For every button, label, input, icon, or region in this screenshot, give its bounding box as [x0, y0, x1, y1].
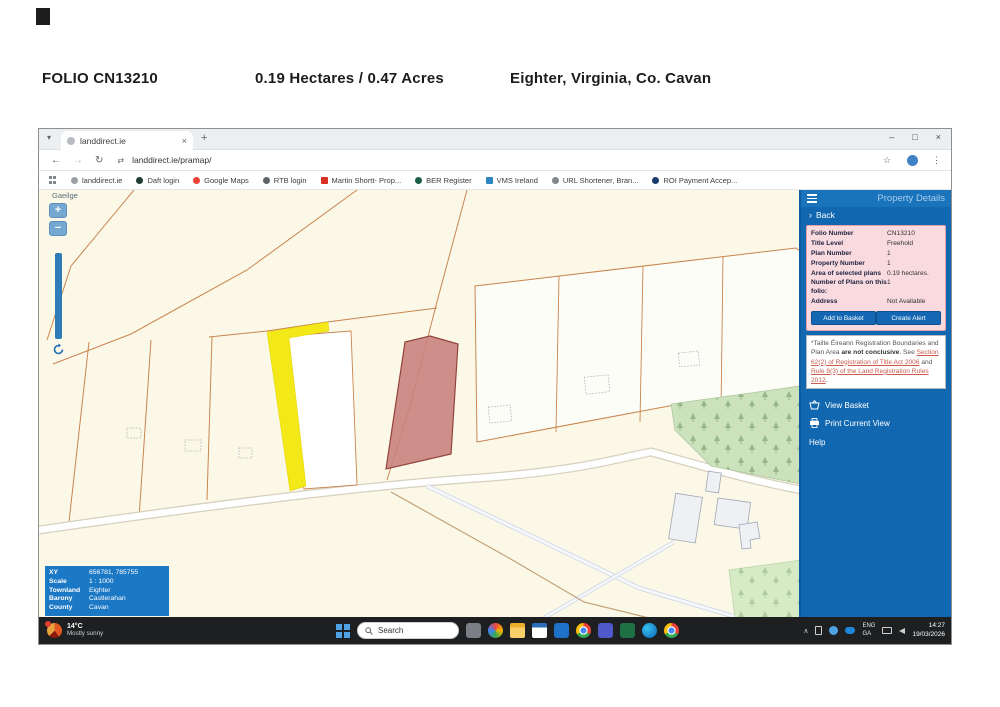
zoom-slider[interactable]	[55, 253, 62, 339]
bookmark-favicon-icon	[321, 177, 328, 184]
detail-row: Title LevelFreehold	[811, 240, 941, 249]
area-title: 0.19 Hectares / 0.47 Acres	[255, 70, 444, 87]
tab-close-icon[interactable]: ×	[182, 136, 187, 146]
bookmark-favicon-icon	[486, 177, 493, 184]
detail-row: Folio NumberCN13210	[811, 230, 941, 239]
bookmark-favicon-icon	[263, 177, 270, 184]
map-basemap	[39, 190, 799, 618]
zoom-out-button[interactable]: −	[49, 221, 67, 236]
window-minimize-button[interactable]: –	[889, 132, 894, 142]
browser-toolbar: ← → ↻ ⇄ landdirect.ie/pramap/ ☆ ⋮	[39, 150, 951, 171]
phone-link-icon[interactable]	[815, 626, 822, 635]
disclaimer-card: *Tailte Éireann Registration Boundaries …	[806, 335, 946, 389]
bookmark-favicon-icon	[552, 177, 559, 184]
file-explorer-icon[interactable]	[510, 623, 525, 638]
back-icon[interactable]: ←	[51, 155, 61, 166]
clock[interactable]: 14:27 19/03/2026	[912, 622, 945, 639]
bookmark-favicon-icon	[193, 177, 200, 184]
help-link[interactable]: Help	[801, 434, 951, 451]
add-to-basket-button[interactable]: Add to Basket	[811, 311, 876, 325]
chrome-2-icon[interactable]	[664, 623, 679, 638]
bookmark-favicon-icon	[71, 177, 78, 184]
bookmark-favicon-icon	[415, 177, 422, 184]
search-icon	[365, 627, 373, 635]
volume-icon[interactable]	[899, 628, 905, 634]
info-row: TownlandEighter	[49, 587, 165, 596]
detail-row: Property Number1	[811, 260, 941, 269]
disclaimer-link-registration-rules[interactable]: Rule 8(3) of the Land Registration Rules…	[811, 368, 929, 384]
bookmark-favicon-icon	[136, 177, 143, 184]
bookmark-ber-register[interactable]: BER Register	[415, 176, 471, 185]
zoom-in-button[interactable]: +	[49, 203, 67, 218]
panel-title: Property Details	[817, 193, 945, 204]
detail-row: Number of Plans on this folio:1	[811, 279, 941, 297]
photos-icon[interactable]	[488, 623, 503, 638]
view-basket-link[interactable]: View Basket	[801, 396, 951, 414]
tab-strip: ▾ landdirect.ie × + – □ ×	[39, 129, 951, 150]
onedrive-icon[interactable]	[845, 627, 855, 634]
tab-list-chevron-icon[interactable]: ▾	[47, 133, 51, 142]
tab-title: landdirect.ie	[80, 136, 177, 146]
forward-icon[interactable]: →	[73, 155, 83, 166]
bookmark-star-icon[interactable]: ☆	[883, 155, 891, 166]
bluetooth-icon[interactable]	[829, 626, 838, 635]
back-button[interactable]: › Back	[801, 207, 951, 223]
outlook-icon[interactable]	[554, 623, 569, 638]
windows-taskbar: 14°C Mostly sunny Search	[39, 617, 951, 644]
bookmark-vms-ireland[interactable]: VMS Ireland	[486, 176, 538, 185]
detail-row: Plan Number1	[811, 250, 941, 259]
teams-icon[interactable]	[598, 623, 613, 638]
bookmark-martin-shortt[interactable]: Martin Shortt- Prop...	[321, 176, 402, 185]
info-row: BaronyCastlerahan	[49, 595, 165, 604]
edge-icon[interactable]	[642, 623, 657, 638]
browser-tab[interactable]: landdirect.ie ×	[61, 131, 193, 150]
bookmark-landdirect[interactable]: landdirect.ie	[71, 176, 122, 185]
reload-icon[interactable]: ↻	[95, 155, 103, 166]
weather-condition: Mostly sunny	[67, 631, 103, 638]
info-row: Scale1 : 1000	[49, 578, 165, 587]
bookmark-url-shortener[interactable]: URL Shortener, Bran...	[552, 176, 639, 185]
language-toggle[interactable]: Gaeilge	[52, 191, 78, 200]
bookmark-rtb-login[interactable]: RTB login	[263, 176, 307, 185]
window-close-button[interactable]: ×	[936, 132, 941, 142]
language-indicator[interactable]: ENG GA	[862, 623, 875, 638]
create-alert-button[interactable]: Create Alert	[876, 311, 941, 325]
calendar-icon[interactable]	[532, 623, 547, 638]
network-icon[interactable]	[882, 627, 892, 634]
tab-favicon-icon	[67, 137, 75, 145]
bookmark-roi-payment[interactable]: ROI Payment Accep...	[652, 176, 737, 185]
bookmark-daft-login[interactable]: Daft login	[136, 176, 179, 185]
bookmarks-bar: landdirect.ie Daft login Google Maps RTB…	[39, 171, 951, 190]
profile-avatar[interactable]	[907, 155, 918, 166]
back-label: Back	[816, 210, 835, 220]
chevron-right-icon: ›	[809, 210, 812, 220]
menu-icon[interactable]	[807, 194, 817, 203]
weather-icon	[47, 623, 62, 638]
system-tray: ∧ ENG GA 14:27 19/03/2026	[803, 617, 945, 644]
detail-row: AddressNot Available	[811, 298, 941, 307]
address-bar[interactable]: landdirect.ie/pramap/	[132, 155, 883, 165]
browser-window: ▾ landdirect.ie × + – □ × ← → ↻ ⇄ landdi…	[38, 128, 952, 645]
chrome-icon[interactable]	[576, 623, 591, 638]
refresh-view-icon[interactable]	[52, 343, 65, 356]
tray-chevron-icon[interactable]: ∧	[803, 627, 808, 635]
print-current-view-link[interactable]: Print Current View	[801, 414, 951, 432]
coordinates-info-box: XY656781, 785755 Scale1 : 1000 TownlandE…	[45, 566, 169, 616]
taskbar-center: Search	[336, 617, 679, 644]
map-canvas[interactable]: Gaeilge + − XY656781, 785755 Scale1 : 10…	[39, 190, 799, 618]
weather-widget[interactable]: 14°C Mostly sunny	[47, 623, 103, 638]
taskbar-apps	[466, 623, 679, 638]
apps-grid-icon[interactable]	[49, 176, 57, 184]
bookmark-favicon-icon	[652, 177, 659, 184]
panel-menu: View Basket Print Current View Help	[801, 396, 951, 451]
window-controls: – □ ×	[889, 132, 941, 142]
printer-icon	[809, 418, 820, 428]
bookmark-google-maps[interactable]: Google Maps	[193, 176, 249, 185]
detail-row: Area of selected plans0.19 hectares.	[811, 270, 941, 279]
page-content: Gaeilge + − XY656781, 785755 Scale1 : 10…	[39, 190, 951, 618]
taskbar-search[interactable]: Search	[357, 622, 459, 639]
info-row: CountyCavan	[49, 604, 165, 613]
site-info-icon[interactable]: ⇄	[117, 156, 124, 165]
task-view-icon[interactable]	[466, 623, 481, 638]
window-restore-button[interactable]: □	[912, 132, 917, 142]
folio-details-card: Folio NumberCN13210 Title LevelFreehold …	[806, 225, 946, 331]
location-title: Eighter, Virginia, Co. Cavan	[510, 70, 711, 87]
start-button[interactable]	[336, 624, 350, 638]
property-details-panel: Property Details › Back Folio NumberCN13…	[799, 190, 951, 618]
folio-title: FOLIO CN13210	[42, 70, 158, 87]
panel-header: Property Details	[801, 190, 951, 207]
browser-menu-icon[interactable]: ⋮	[932, 155, 941, 166]
excel-icon[interactable]	[620, 623, 635, 638]
basket-icon	[809, 400, 820, 410]
scan-corner-mark	[36, 8, 50, 25]
info-row: XY656781, 785755	[49, 569, 165, 578]
new-tab-button[interactable]: +	[201, 132, 207, 144]
